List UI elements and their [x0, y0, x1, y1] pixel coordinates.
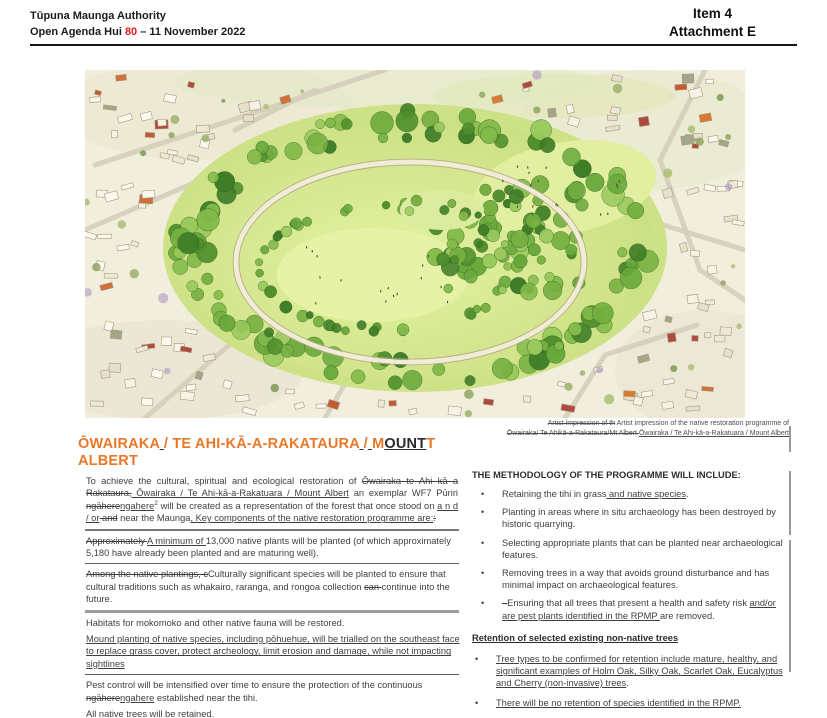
- methodology-list: •Retaining the tihi in grass and native …: [472, 488, 788, 622]
- maunga-illustration: [85, 70, 745, 418]
- image-caption: Artist impression of th Artist impressio…: [415, 419, 789, 439]
- retention-list: •Tree types to be confirmed for retentio…: [472, 653, 788, 710]
- header-org: Tūpuna Maunga Authority: [30, 8, 245, 24]
- caption-line-2: Ōwairaka/ Te Ahikā-a-Rakataura/Mt Albert…: [415, 429, 789, 439]
- page-title: ŌWAIRAKA / TE AHI-KĀ-A-RAKATAURA / MOUNT…: [78, 436, 462, 469]
- bullet-item: •Tree types to be confirmed for retentio…: [472, 653, 788, 690]
- restoration-items: Approximately A minimum of 13,000 native…: [78, 535, 462, 718]
- header-agenda-line: Open Agenda Hui 80 – 11 November 2022: [30, 24, 245, 40]
- left-column: ŌWAIRAKA / TE AHI-KĀ-A-RAKATAURA / MOUNT…: [78, 436, 462, 718]
- change-bar: [789, 471, 791, 535]
- bullet-marker-icon: •: [472, 597, 502, 621]
- bullet-item: •Retaining the tihi in grass and native …: [472, 488, 788, 500]
- bullet-item: •Selecting appropriate plants that can b…: [472, 537, 788, 561]
- header-right: Item 4 Attachment E: [610, 5, 815, 41]
- bullet-marker-icon: •: [472, 537, 502, 561]
- agenda-number: 80: [125, 26, 137, 38]
- bullet-item: •Removing trees in a way that avoids gro…: [472, 567, 788, 591]
- bullet-item: •–Ensuring that all trees that present a…: [472, 597, 788, 621]
- bullet-text: Retaining the tihi in grass and native s…: [502, 488, 689, 500]
- bullet-marker-icon: •: [472, 488, 502, 500]
- bullet-text: Selecting appropriate plants that can be…: [502, 537, 788, 561]
- divider: [85, 674, 459, 675]
- header-left: Tūpuna Maunga Authority Open Agenda Hui …: [30, 8, 245, 40]
- caption-line-1: Artist impression of th Artist impressio…: [415, 419, 789, 429]
- bullet-item: •There will be no retention of species i…: [472, 697, 788, 709]
- change-bar: [789, 540, 791, 672]
- list-item: Pest control will be intensified over ti…: [86, 679, 462, 704]
- methodology-heading: THE METHODOLOGY OF THE PROGRAMME WILL IN…: [472, 469, 788, 482]
- bullet-text: Planting in areas where in situ archaeol…: [502, 506, 788, 530]
- retention-heading: Retention of selected existing non-nativ…: [472, 632, 788, 645]
- bullet-marker-icon: •: [472, 653, 496, 690]
- list-item: Among the native plantings, cCulturally …: [86, 568, 462, 605]
- bullet-item: •Planting in areas where in situ archaeo…: [472, 506, 788, 530]
- bullet-marker-icon: •: [472, 567, 502, 591]
- change-bar: [789, 426, 791, 452]
- bullet-text: Removing trees in a way that avoids grou…: [502, 567, 788, 591]
- bullet-marker-icon: •: [472, 697, 496, 709]
- list-item: All native trees will be retained.: [86, 708, 462, 718]
- right-column: THE METHODOLOGY OF THE PROGRAMME WILL IN…: [472, 469, 788, 710]
- bullet-text: Tree types to be confirmed for retention…: [496, 653, 788, 690]
- list-item: Approximately A minimum of 13,000 native…: [86, 535, 462, 560]
- divider: [85, 563, 459, 564]
- attachment-label: Attachment E: [610, 23, 815, 41]
- list-item: Mound planting of native species, includ…: [86, 633, 462, 670]
- divider: [85, 529, 459, 531]
- bullet-text: There will be no retention of species id…: [496, 697, 741, 709]
- item-number: Item 4: [610, 5, 815, 23]
- bullet-marker-icon: •: [472, 506, 502, 530]
- bullet-text: –Ensuring that all trees that present a …: [502, 597, 788, 621]
- header-rule: [30, 44, 797, 46]
- intro-paragraph: To achieve the cultural, spiritual and e…: [86, 475, 458, 525]
- document-page: Tūpuna Maunga Authority Open Agenda Hui …: [0, 0, 827, 718]
- list-item: Habitats for mokomoko and other native f…: [86, 617, 462, 629]
- divider: [85, 610, 459, 613]
